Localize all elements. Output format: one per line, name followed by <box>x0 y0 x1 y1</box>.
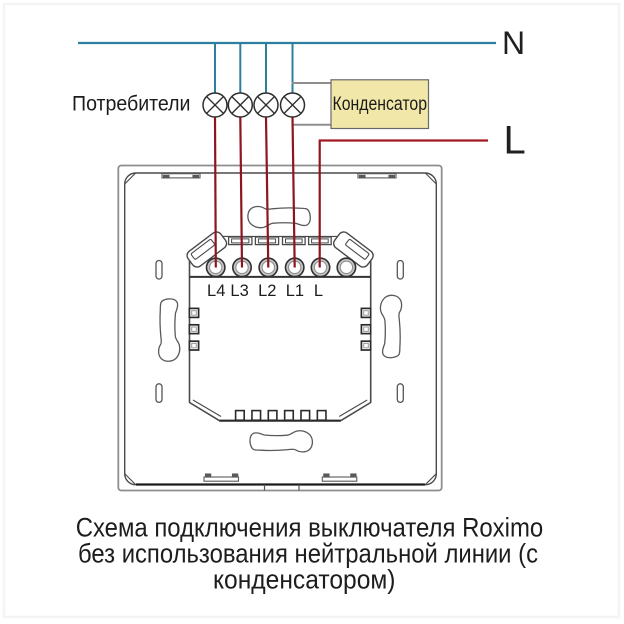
svg-text:L3: L3 <box>230 282 248 300</box>
svg-text:Конденсатор: Конденсатор <box>333 94 428 115</box>
svg-text:L1: L1 <box>286 282 304 300</box>
svg-text:L4: L4 <box>207 282 225 300</box>
svg-text:конденсатором): конденсатором) <box>213 564 396 594</box>
svg-text:Потребители: Потребители <box>72 92 191 115</box>
svg-text:L: L <box>314 282 323 300</box>
svg-text:L: L <box>504 119 526 163</box>
svg-text:N: N <box>502 25 525 61</box>
svg-text:L2: L2 <box>258 282 276 300</box>
